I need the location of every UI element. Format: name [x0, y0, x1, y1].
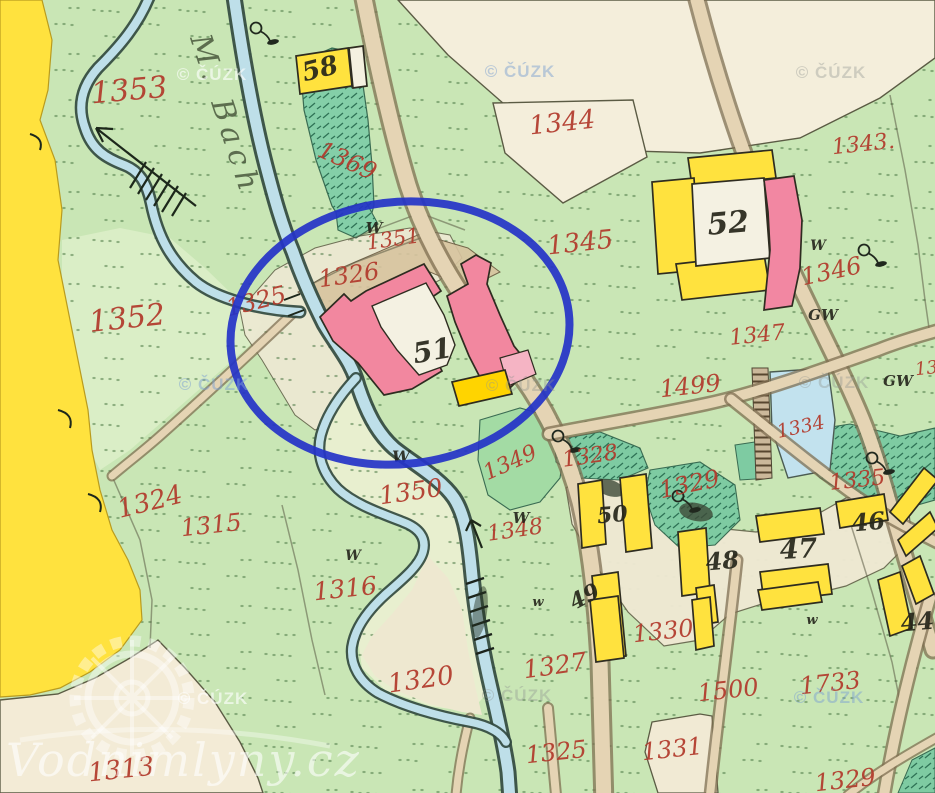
cuzk-watermark: © ČÚZK: [177, 65, 247, 84]
meadow-symbol: W: [513, 509, 532, 527]
meadow-symbol: GW: [883, 372, 915, 390]
cuzk-watermark: © ČÚZK: [482, 686, 552, 705]
cuzk-watermark: © ČÚZK: [179, 375, 249, 394]
cuzk-watermark: © ČÚZK: [486, 376, 556, 395]
parcel-number-red: 1353: [90, 70, 169, 112]
building-number: 47: [779, 533, 818, 566]
meadow-symbol: W: [366, 219, 385, 237]
building-number: 52: [706, 204, 751, 243]
cuzk-watermark: © ČÚZK: [794, 688, 864, 707]
parcel-number-red: 1329: [813, 763, 877, 793]
cuzk-watermark: © ČÚZK: [178, 689, 248, 708]
cuzk-watermark: © ČÚZK: [799, 373, 869, 392]
meadow-symbol: GW: [808, 306, 840, 324]
building-road-1330-b: [692, 597, 714, 650]
building-number: 44: [899, 606, 935, 638]
brand-watermark: Vodnimlyny.cz: [6, 733, 361, 787]
building-number: 48: [704, 545, 740, 577]
cadastral-map: 1353136913511326132513521324131513161350…: [0, 0, 935, 793]
building-number: 46: [850, 506, 886, 538]
cuzk-watermark: © ČÚZK: [796, 63, 866, 82]
cuzk-watermark: © ČÚZK: [485, 62, 555, 81]
meadow-symbol: W: [345, 548, 362, 564]
meadow-symbol: w: [806, 613, 818, 628]
parcel-number-red: 13: [914, 357, 935, 380]
meadow-symbol: w: [532, 595, 544, 610]
building-number: 51: [410, 331, 454, 370]
meadow-symbol: W: [810, 238, 827, 254]
building-number: 50: [596, 501, 629, 530]
